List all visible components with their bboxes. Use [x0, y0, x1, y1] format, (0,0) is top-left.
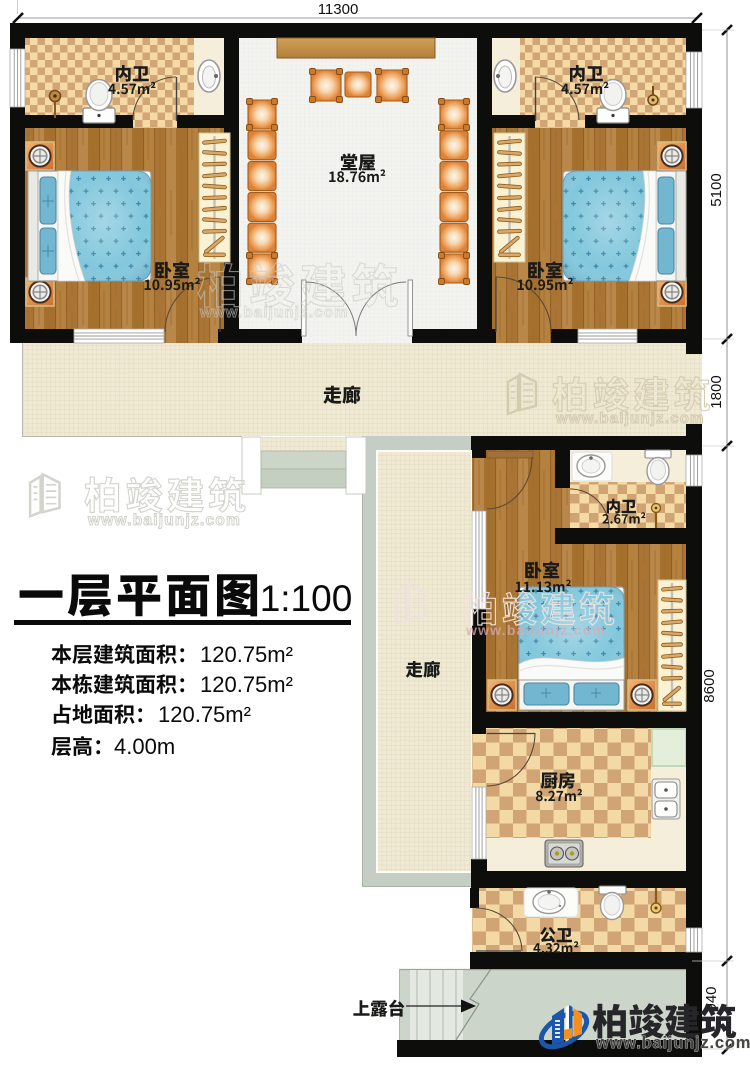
svg-text:www.baijunjz.com: www.baijunjz.com — [199, 304, 349, 321]
svg-text:4.00m: 4.00m — [114, 734, 175, 759]
svg-text:1800: 1800 — [708, 375, 725, 408]
svg-text:120.75m²: 120.75m² — [158, 702, 251, 727]
svg-text:www.baijunjz.com: www.baijunjz.com — [555, 410, 705, 427]
svg-text:5100: 5100 — [708, 173, 725, 206]
svg-text:8600: 8600 — [701, 669, 718, 702]
svg-text:www.baijunjz.com: www.baijunjz.com — [595, 1034, 750, 1052]
svg-text:www.baijunjz.com: www.baijunjz.com — [465, 622, 606, 638]
svg-text:120.75m²: 120.75m² — [200, 642, 293, 667]
svg-text:1:100: 1:100 — [260, 578, 353, 619]
svg-text:www.baijunjz.com: www.baijunjz.com — [87, 512, 241, 529]
svg-text:11300: 11300 — [318, 1, 359, 18]
svg-text:120.75m²: 120.75m² — [200, 672, 293, 697]
